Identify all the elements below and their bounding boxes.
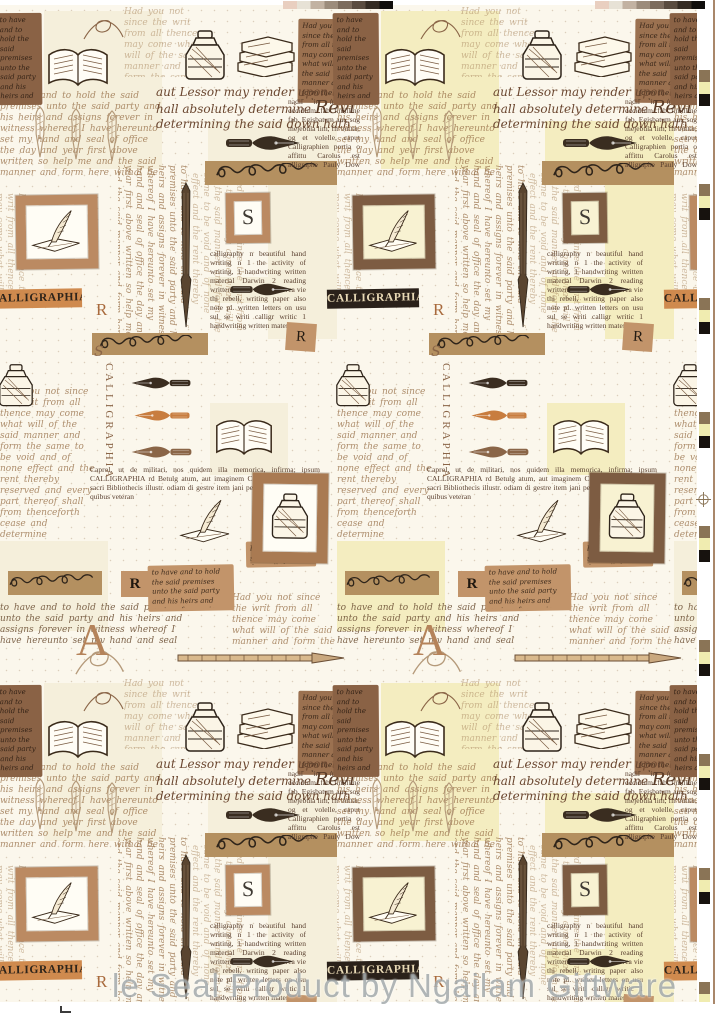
quill-writing-icon	[365, 207, 422, 256]
book-stack-icon	[234, 31, 296, 77]
ink-bottle-icon	[0, 363, 36, 409]
pen-nib-vertical-icon	[439, 109, 459, 165]
letter-r: R	[622, 322, 654, 352]
pen-nib-vertical-icon	[66, 107, 86, 163]
pen-nib-vertical-icon	[66, 779, 86, 835]
quill-writing-icon	[28, 879, 85, 928]
flourish-icon	[80, 687, 126, 715]
open-book-icon	[46, 43, 110, 93]
vertical-pen-icon	[176, 181, 196, 331]
letter-s: S	[234, 201, 262, 235]
ink-bottle-icon	[606, 488, 649, 547]
book-stack-icon	[571, 703, 633, 749]
ink-bottle-icon	[333, 363, 373, 409]
vignette-inner	[363, 205, 426, 260]
letter-s: S	[571, 201, 599, 235]
handwriting-script-text: to have and to hold the said premises un…	[674, 603, 697, 643]
vignette-inner	[26, 877, 89, 932]
parchment-scrap: to have and to hold the said premises un…	[0, 13, 42, 105]
ink-bottle-icon	[519, 29, 565, 83]
quill-writing-icon	[365, 879, 422, 928]
open-book-icon	[383, 715, 447, 765]
parchment-scrap: to have and to hold the said premises un…	[333, 685, 380, 777]
pen-nib-icon	[467, 442, 530, 462]
swirl-ornament-icon	[682, 573, 697, 592]
pen-nib-icon	[470, 408, 528, 423]
ink-bottle-icon	[519, 701, 565, 755]
pattern-tile: to have and to hold the said premises un…	[0, 677, 337, 1002]
framed-quill-vignette	[689, 194, 697, 269]
pen-nib-icon	[565, 281, 633, 298]
parchment-scrap: to have and to hold the said premises un…	[670, 685, 697, 777]
calligraphia-label: CALLIGRAPHIA	[0, 960, 82, 981]
s-initial-block: S	[563, 865, 608, 916]
handwriting-script-text: Had you not since the writ from all then…	[674, 387, 697, 537]
pen-nib-vertical-icon	[30, 105, 50, 161]
registration-line	[713, 0, 715, 1004]
letter-r: R	[121, 571, 149, 597]
calligraphia-label: CALLIGRAPHIA	[664, 288, 697, 309]
pattern-tile: to have and to hold the said premises un…	[674, 5, 697, 677]
handwriting-script-text: Had you not since the writ from all then…	[337, 387, 433, 537]
registration-strip-top	[283, 1, 393, 9]
open-book-icon	[551, 413, 611, 463]
pen-nib-icon	[130, 373, 192, 393]
registration-strip-top	[595, 1, 705, 9]
swirl-ornament-strip	[8, 571, 102, 595]
framed-quill-vignette	[689, 866, 697, 941]
parchment-script: to have and to hold the said premises un…	[0, 16, 38, 102]
pen-nib-vertical-icon	[439, 781, 459, 837]
parchment-script: to have and to hold the said premises un…	[337, 688, 376, 774]
letter-s: S	[431, 345, 447, 361]
s-initial-block: S	[226, 193, 271, 244]
pen-nib-vertical-icon	[30, 777, 50, 833]
ink-bottle-icon	[269, 488, 312, 547]
vignette-inner	[363, 877, 426, 932]
book-stack-icon	[234, 703, 296, 749]
framed-quill-vignette	[15, 866, 98, 941]
calligraphia-vertical: CALLIGRAPHIA	[433, 363, 451, 491]
swirl-ornament-strip	[345, 571, 439, 595]
parchment-scrap: to have and to hold the said premises un…	[485, 564, 572, 611]
watermark: le Seal Product by Ngailam Giftware	[112, 967, 677, 1005]
pen-nib-vertical-icon	[102, 109, 122, 165]
parchment-script: to have and to hold the said premises un…	[674, 16, 697, 102]
ink-bottle-icon	[670, 363, 697, 409]
framed-inkwell-vignette	[251, 472, 328, 563]
letter-a: A	[76, 617, 128, 679]
letter-r: R	[433, 301, 453, 323]
letter-s: S	[234, 873, 262, 907]
framed-quill-vignette	[15, 194, 98, 269]
ink-bottle-icon	[182, 701, 228, 755]
swirl-ornament-strip	[682, 571, 697, 595]
corner-tick	[60, 1006, 71, 1013]
calligraphia-vertical: CALLIGRAPHIA	[96, 363, 114, 491]
swirl-ornament-icon	[8, 573, 102, 592]
letter-r: R	[285, 322, 317, 352]
pen-nib-icon	[467, 373, 529, 393]
pen-nib-icon	[133, 408, 191, 423]
parchment-script: to have and to hold the said premises un…	[489, 567, 568, 608]
ink-bottle-icon	[182, 29, 228, 83]
quill-writing-icon	[28, 207, 85, 256]
parchment-scrap: to have and to hold the said premises un…	[670, 13, 697, 105]
pen-nib-vertical-icon	[367, 105, 387, 161]
swirl-ornament-icon	[345, 573, 439, 592]
pattern-tile: to have and to hold the said premises un…	[337, 677, 674, 1002]
pattern-tile: to have and to hold the said premises un…	[674, 677, 697, 1002]
vignette-inner	[26, 205, 89, 260]
letter-r: R	[458, 571, 486, 597]
scanned-giftwrap-pattern: to have and to hold the said premises un…	[0, 0, 717, 1024]
framed-quill-vignette	[352, 866, 435, 941]
letter-r: R	[96, 301, 116, 323]
handwriting-script-text: Had you not since the writ from all then…	[232, 593, 337, 645]
pen-nib-vertical-icon	[403, 779, 423, 835]
pen-nib-vertical-icon	[403, 107, 423, 163]
pattern-tile: to have and to hold the said premises un…	[337, 5, 674, 677]
vignette-inner	[600, 484, 655, 553]
calligraphia-label: CALLIGRAPHIA	[0, 288, 82, 309]
parchment-scrap: to have and to hold the said premises un…	[148, 564, 235, 611]
registration-crosshair-icon	[696, 492, 711, 507]
pen-nib-icon	[228, 281, 296, 298]
calligraphy-pattern-area: to have and to hold the said premises un…	[0, 5, 697, 1002]
wooden-pen-icon	[513, 649, 683, 667]
framed-inkwell-vignette	[588, 472, 665, 563]
flourish-icon	[80, 15, 126, 43]
handwriting-script-text: Had you not since the writ from all then…	[0, 387, 96, 537]
parchment-scrap: to have and to hold the said premises un…	[333, 13, 380, 105]
s-initial-block: S	[226, 865, 271, 916]
parchment-script: to have and to hold the said premises un…	[152, 567, 231, 608]
open-book-icon	[214, 413, 274, 463]
pattern-tile: to have and to hold the said premises un…	[0, 5, 337, 677]
vertical-pen-icon	[513, 181, 533, 331]
flourish-icon	[417, 15, 463, 43]
parchment-script: to have and to hold the said premises un…	[0, 688, 38, 774]
open-book-icon	[383, 43, 447, 93]
vignette-inner	[263, 484, 318, 553]
open-book-icon	[46, 715, 110, 765]
flourish-icon	[417, 687, 463, 715]
parchment-script: to have and to hold the said premises un…	[674, 688, 697, 774]
letter-s: S	[571, 873, 599, 907]
pen-nib-icon	[130, 442, 193, 462]
book-stack-icon	[571, 31, 633, 77]
wooden-pen-icon	[176, 649, 346, 667]
calligraphia-label: CALLIGRAPHIA	[327, 288, 419, 309]
framed-quill-vignette	[352, 194, 435, 269]
parchment-scrap: to have and to hold the said premises un…	[0, 685, 42, 777]
s-initial-block: S	[563, 193, 608, 244]
letter-s: S	[94, 345, 110, 361]
handwriting-script-text: Had you not since the writ from all then…	[569, 593, 674, 645]
pen-nib-vertical-icon	[102, 781, 122, 837]
parchment-script: to have and to hold the said premises un…	[337, 16, 376, 102]
pen-nib-vertical-icon	[367, 777, 387, 833]
letter-a: A	[413, 617, 465, 679]
